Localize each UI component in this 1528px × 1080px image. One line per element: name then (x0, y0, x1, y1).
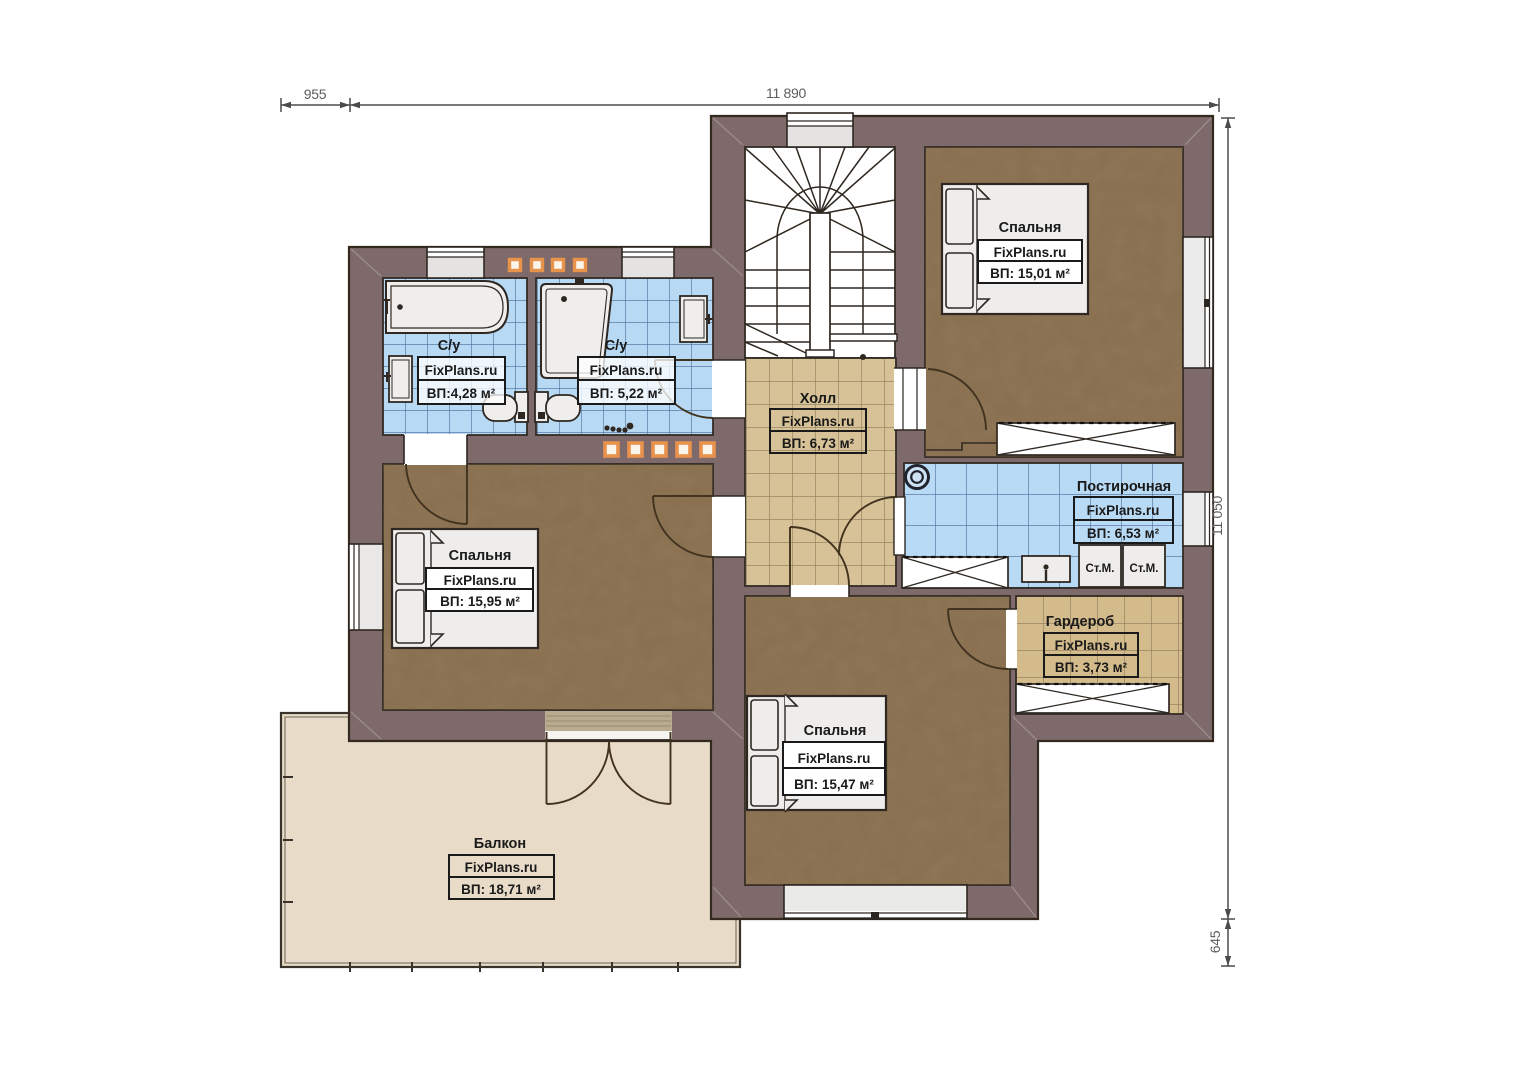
svg-text:С/у: С/у (438, 338, 461, 354)
svg-text:Ст.М.: Ст.М. (1130, 563, 1159, 575)
svg-text:FixPlans.ru: FixPlans.ru (465, 860, 538, 875)
svg-text:645: 645 (1207, 930, 1223, 953)
svg-text:FixPlans.ru: FixPlans.ru (444, 573, 517, 588)
svg-text:ВП: 5,22 м²: ВП: 5,22 м² (590, 386, 663, 401)
svg-text:FixPlans.ru: FixPlans.ru (782, 414, 855, 429)
svg-text:Балкон: Балкон (474, 836, 526, 852)
svg-text:Спальня: Спальня (804, 723, 867, 739)
svg-text:Спальня: Спальня (999, 220, 1062, 236)
svg-text:Ст.М.: Ст.М. (1086, 563, 1115, 575)
svg-text:ВП: 3,73 м²: ВП: 3,73 м² (1055, 660, 1128, 675)
svg-text:955: 955 (304, 86, 327, 102)
svg-text:FixPlans.ru: FixPlans.ru (1055, 638, 1128, 653)
svg-text:11 050: 11 050 (1209, 495, 1225, 535)
svg-text:ВП: 6,73 м²: ВП: 6,73 м² (782, 436, 855, 451)
svg-text:ВП: 15,95 м²: ВП: 15,95 м² (440, 594, 520, 609)
svg-text:ВП: 15,47 м²: ВП: 15,47 м² (794, 777, 874, 792)
svg-text:FixPlans.ru: FixPlans.ru (798, 751, 871, 766)
svg-text:11 890: 11 890 (766, 85, 806, 101)
svg-text:FixPlans.ru: FixPlans.ru (425, 363, 498, 378)
svg-text:Гардероб: Гардероб (1046, 614, 1115, 630)
svg-text:ВП: 15,01 м²: ВП: 15,01 м² (990, 266, 1070, 281)
svg-text:FixPlans.ru: FixPlans.ru (590, 363, 663, 378)
svg-text:Холл: Холл (800, 391, 836, 407)
svg-text:Спальня: Спальня (449, 548, 512, 564)
svg-text:Постирочная: Постирочная (1077, 479, 1171, 495)
svg-text:ВП: 18,71 м²: ВП: 18,71 м² (461, 882, 541, 897)
svg-text:FixPlans.ru: FixPlans.ru (994, 245, 1067, 260)
svg-text:ВП:4,28 м²: ВП:4,28 м² (427, 386, 496, 401)
svg-text:FixPlans.ru: FixPlans.ru (1087, 503, 1160, 518)
svg-text:С/у: С/у (605, 338, 628, 354)
svg-text:ВП: 6,53 м²: ВП: 6,53 м² (1087, 526, 1160, 541)
